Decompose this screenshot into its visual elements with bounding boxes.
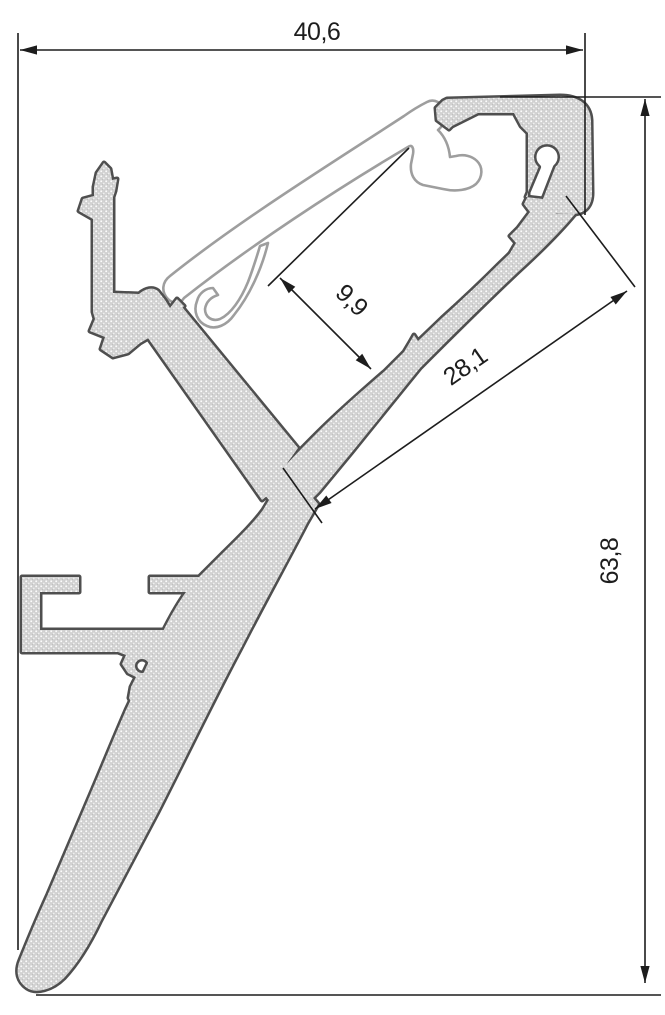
dimension-label-channel-depth: 9,9	[330, 279, 373, 322]
aluminum-profile-cross-section	[18, 96, 592, 991]
dimension-channel-depth	[268, 148, 409, 372]
led-profile-cross-section-drawing: 40,6 63,8 9,9 28,1	[0, 0, 665, 1015]
extension-line	[268, 148, 409, 286]
dimension-label-slant-face: 28,1	[438, 342, 492, 392]
diffuser-hook-outline	[195, 243, 268, 327]
extension-line	[566, 196, 635, 287]
technical-drawing-page: 40,6 63,8 9,9 28,1	[0, 0, 665, 1015]
diffuser-cover-outline	[163, 101, 481, 328]
dimension-label-top-width: 40,6	[294, 18, 341, 46]
diffuser-body-outline	[163, 101, 481, 303]
dimension-label-total-height: 63,8	[596, 538, 624, 585]
